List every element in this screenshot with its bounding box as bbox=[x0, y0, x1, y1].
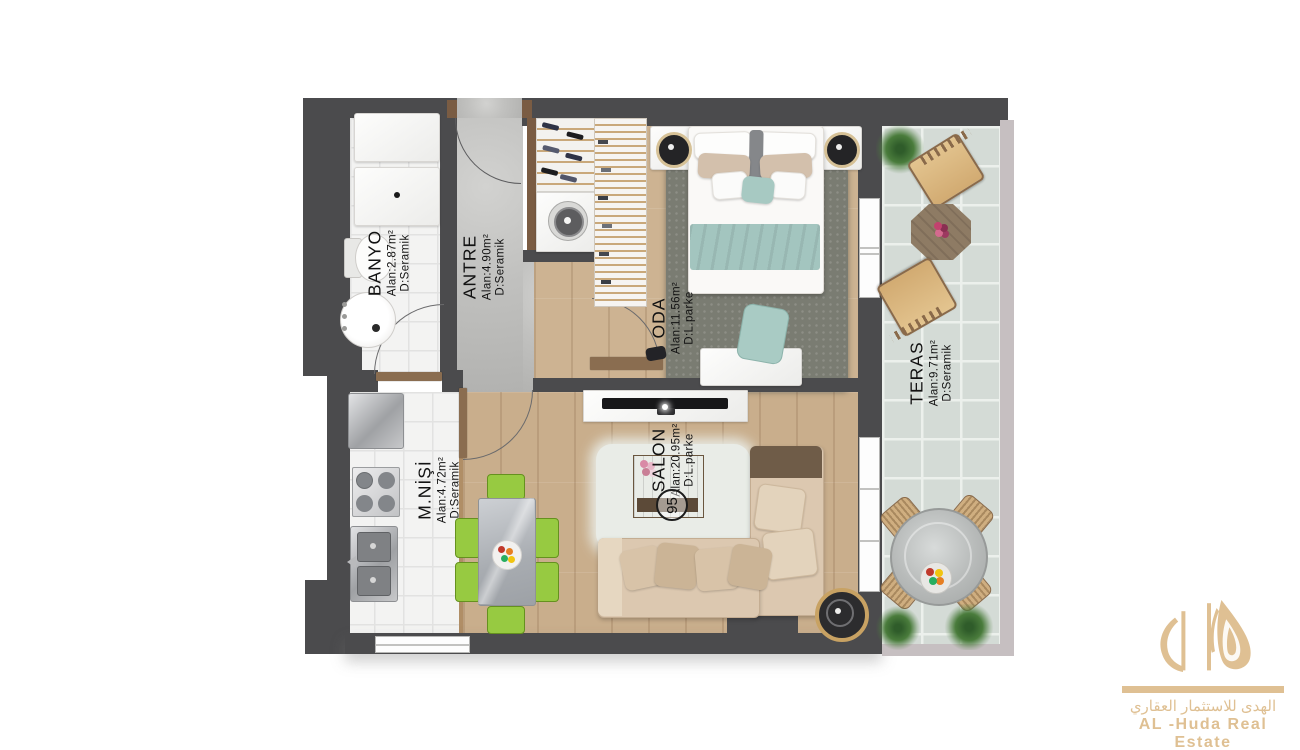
lamp-right-dot bbox=[836, 144, 842, 150]
room-label-mnisi: M.NİŞİ Alan:4.72m² D:Seramik bbox=[415, 457, 462, 523]
logo-english-text: AL -Huda Real Estate bbox=[1122, 716, 1284, 750]
dining-chair bbox=[533, 562, 559, 602]
bed-cushion-teal bbox=[741, 175, 776, 204]
room-label-teras: TERAS Alan:9.71m² D:Seramik bbox=[907, 340, 954, 406]
bed-blanket-teal bbox=[690, 224, 820, 270]
vanity-chair-teal bbox=[735, 302, 790, 365]
livingroom-terrace-door bbox=[859, 437, 880, 592]
livingroom-door bbox=[459, 388, 467, 458]
bathroom-door bbox=[376, 372, 442, 381]
sofa-pillow bbox=[654, 542, 700, 590]
bed-cushion-white bbox=[769, 171, 807, 200]
room-label-banyo: BANYO Alan:2.87m² D:Seramik bbox=[365, 230, 412, 296]
wardrobe-clothes bbox=[598, 140, 608, 144]
room-floor-type: D:L.parke bbox=[684, 433, 696, 486]
bedroom-window bbox=[859, 198, 880, 298]
terrace-grass bbox=[876, 606, 920, 650]
bathtub bbox=[354, 113, 440, 162]
flower-vase bbox=[640, 460, 648, 468]
room-area: Alan:2.87m² bbox=[387, 230, 399, 296]
room-name: SALON bbox=[649, 428, 670, 492]
lamp-right bbox=[824, 132, 860, 168]
fruit-plate bbox=[492, 540, 522, 570]
dining-chair bbox=[487, 474, 525, 500]
terrace-flowers bbox=[934, 222, 942, 230]
burner bbox=[356, 472, 373, 489]
sofa-pillow bbox=[727, 543, 774, 591]
shoe-cabinet bbox=[536, 118, 598, 192]
door-jamb bbox=[447, 100, 457, 118]
floor-lamp-dot bbox=[835, 608, 841, 614]
faucet-icon bbox=[342, 302, 347, 307]
sink-drain-dot bbox=[370, 543, 376, 549]
shower-drain bbox=[394, 192, 400, 198]
floor-plan-image: BANYO Alan:2.87m² D:Seramik ANTRE Alan:4… bbox=[0, 0, 1300, 750]
unit-number-badge: 95 bbox=[656, 489, 688, 521]
fruit bbox=[498, 546, 505, 553]
washing-machine-drum-dot bbox=[564, 217, 571, 224]
room-name: TERAS bbox=[907, 341, 928, 404]
dining-chair bbox=[533, 518, 559, 558]
wall-segment bbox=[305, 580, 350, 654]
terrace-parapet-right bbox=[1000, 120, 1014, 654]
closet-divider bbox=[527, 118, 536, 250]
room-name: BANYO bbox=[365, 230, 386, 296]
sofa-pillow bbox=[753, 483, 807, 535]
unit-number: 95 bbox=[664, 497, 681, 514]
room-floor-type: D:L.parke bbox=[684, 291, 696, 344]
logo-arabic-text: الهدى للاستثمار العقاري bbox=[1122, 697, 1284, 715]
logo-mark-icon bbox=[1143, 592, 1263, 684]
company-logo: الهدى للاستثمار العقاري AL -Huda Real Es… bbox=[1122, 592, 1284, 750]
tv-glint bbox=[662, 404, 668, 410]
room-area: Alan:4.90m² bbox=[482, 234, 494, 300]
sink-drain bbox=[372, 324, 380, 332]
room-floor-type: D:Seramik bbox=[495, 238, 507, 295]
room-floor-type: D:Seramik bbox=[942, 344, 954, 401]
terrace-grass bbox=[944, 604, 994, 650]
sofa-armrest bbox=[598, 538, 622, 616]
lamp-left-dot bbox=[668, 144, 674, 150]
kitchen-sink-basin bbox=[357, 566, 391, 596]
room-label-salon: SALON Alan:20.95m² D:L.parke bbox=[649, 423, 696, 496]
refrigerator bbox=[348, 393, 404, 449]
wardrobe bbox=[594, 118, 647, 307]
door-jamb bbox=[522, 100, 532, 118]
patio-fruit-bowl bbox=[920, 562, 952, 594]
bathroom-sink bbox=[340, 292, 396, 348]
lamp-left bbox=[656, 132, 692, 168]
room-name: M.NİŞİ bbox=[415, 460, 436, 519]
room-area: Alan:4.72m² bbox=[437, 457, 449, 523]
room-area: Alan:11.56m² bbox=[671, 282, 683, 354]
sofa-back-brown bbox=[750, 446, 822, 478]
kitchen-faucet bbox=[347, 556, 356, 568]
patio-fruit bbox=[926, 568, 934, 576]
room-area: Alan:20.95m² bbox=[671, 423, 683, 496]
room-name: ANTRE bbox=[460, 235, 481, 299]
entry-floor bbox=[457, 98, 522, 120]
room-label-oda: ODA Alan:11.56m² D:L.parke bbox=[649, 282, 696, 354]
room-label-antre: ANTRE Alan:4.90m² D:Seramik bbox=[460, 234, 507, 300]
room-name: ODA bbox=[649, 298, 670, 339]
livingroom-window bbox=[375, 636, 470, 653]
room-floor-type: D:Seramik bbox=[400, 234, 412, 291]
dining-chair bbox=[487, 606, 525, 634]
room-area: Alan:9.71m² bbox=[929, 340, 941, 406]
logo-divider bbox=[1122, 686, 1284, 693]
room-floor-type: D:Seramik bbox=[450, 461, 462, 518]
